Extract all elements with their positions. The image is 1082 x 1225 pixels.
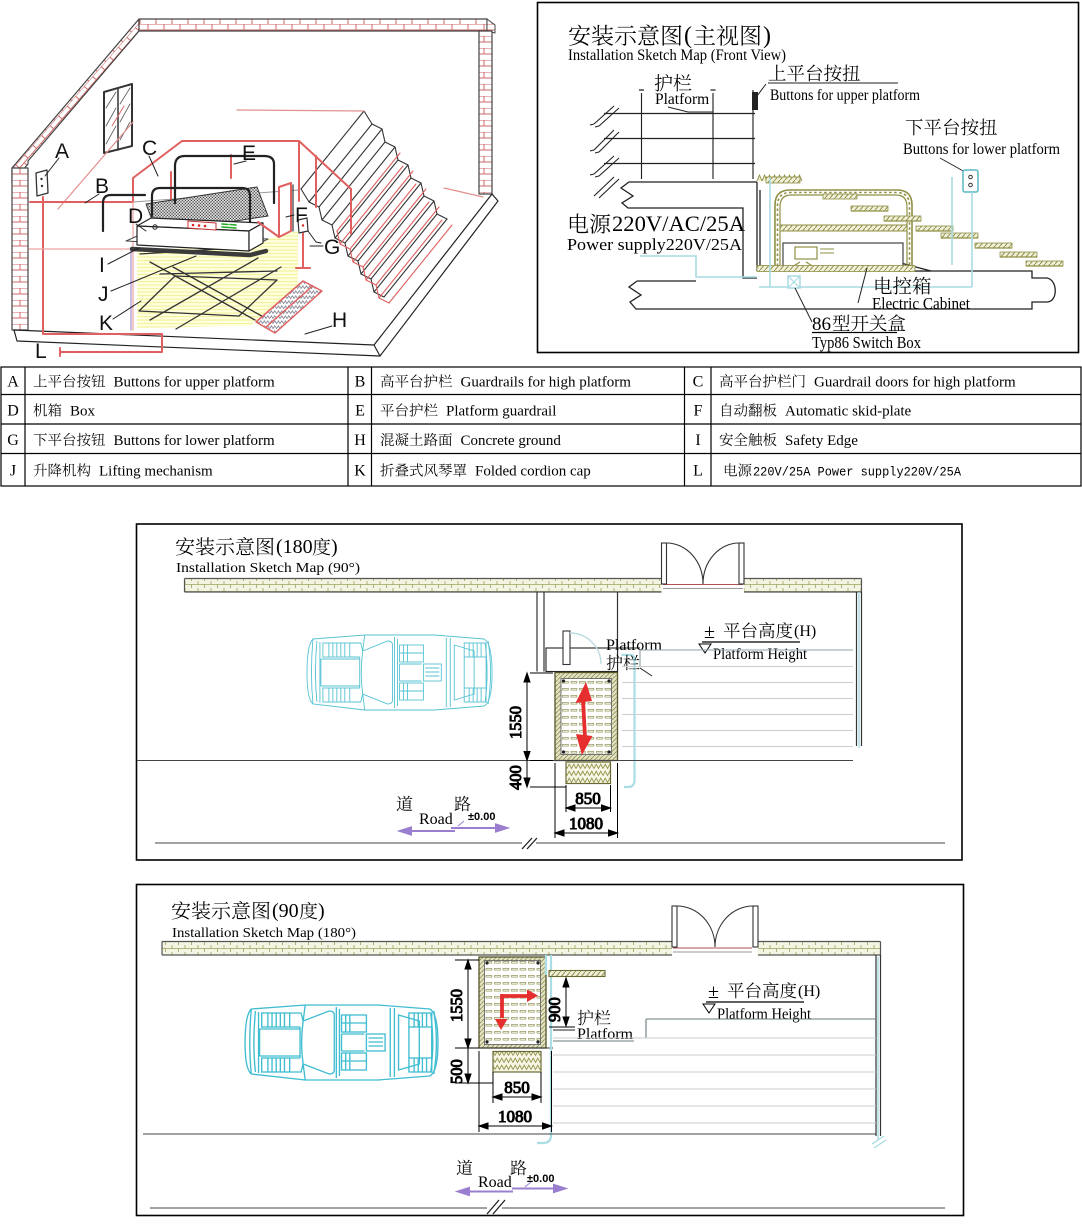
svg-text:1080: 1080 (569, 814, 603, 833)
svg-text:J: J (98, 283, 109, 306)
svg-text:D: D (7, 403, 19, 420)
svg-text:H: H (354, 432, 366, 449)
svg-text:Concrete ground: Concrete ground (461, 433, 562, 449)
svg-text:Power supply220V/25A: Power supply220V/25A (567, 235, 742, 254)
svg-text:900: 900 (545, 997, 564, 1022)
svg-text:±: ± (704, 621, 715, 643)
svg-text:G: G (324, 236, 340, 259)
svg-text:Platform: Platform (655, 91, 709, 108)
svg-text:): ) (763, 23, 771, 49)
svg-text:E: E (355, 403, 365, 420)
svg-text:Electric Cabinet: Electric Cabinet (872, 294, 970, 313)
svg-text:Buttons for upper platform: Buttons for upper platform (114, 375, 276, 391)
svg-text:1550: 1550 (447, 989, 466, 1022)
svg-text:±0.00: ±0.00 (527, 1173, 554, 1185)
svg-text:Platform Height: Platform Height (717, 1006, 811, 1023)
svg-text:K: K (99, 312, 113, 335)
svg-text:Buttons for lower platform: Buttons for lower platform (903, 141, 1060, 158)
svg-text:Road: Road (419, 811, 453, 828)
svg-text:B: B (95, 175, 109, 198)
svg-text:I: I (695, 432, 700, 449)
svg-text:850: 850 (575, 789, 601, 808)
svg-text:400: 400 (506, 765, 525, 790)
svg-text:F: F (694, 403, 703, 420)
svg-text:(180: (180 (276, 536, 313, 558)
svg-text:500: 500 (447, 1059, 466, 1084)
svg-text:Road: Road (478, 1174, 512, 1191)
svg-text:L: L (35, 340, 47, 363)
svg-text:±0.00: ±0.00 (468, 811, 495, 823)
svg-text:Folded cordion cap: Folded cordion cap (475, 464, 591, 480)
svg-text:Guardrail doors for high platf: Guardrail doors for high platform (814, 375, 1016, 391)
svg-text:A: A (7, 374, 19, 391)
svg-text:Installation Sketch Map (Front: Installation Sketch Map (Front View) (568, 47, 786, 64)
svg-text:Box: Box (70, 404, 96, 420)
svg-text:D: D (128, 205, 143, 228)
svg-text:Platform guardrail: Platform guardrail (446, 404, 556, 420)
svg-text:L: L (693, 463, 703, 480)
svg-text:Guardrails for high platform: Guardrails for high platform (461, 375, 632, 391)
svg-text:Automatic skid-plate: Automatic skid-plate (785, 404, 912, 420)
svg-text:C: C (693, 374, 704, 391)
svg-text:±: ± (708, 981, 719, 1003)
svg-text:J: J (10, 463, 16, 480)
svg-text:H: H (332, 309, 347, 332)
svg-text:1550: 1550 (506, 706, 525, 739)
svg-text:Buttons for lower platform: Buttons for lower platform (114, 433, 276, 449)
svg-text:(90: (90 (272, 900, 299, 922)
svg-text:K: K (354, 463, 366, 480)
svg-text:Safety Edge: Safety Edge (785, 433, 858, 449)
svg-text:): ) (318, 900, 325, 922)
svg-text:): ) (331, 536, 338, 558)
svg-text:850: 850 (504, 1078, 530, 1097)
svg-text:1080: 1080 (498, 1107, 532, 1126)
svg-text:(: ( (684, 23, 692, 49)
svg-text:Buttons for upper platform: Buttons for upper platform (770, 87, 920, 104)
svg-text:220V/25A Power supply220V/25A: 220V/25A Power supply220V/25A (753, 466, 961, 480)
svg-text:Lifting mechanism: Lifting mechanism (99, 464, 213, 480)
svg-text:G: G (7, 432, 19, 449)
svg-text:F: F (295, 204, 308, 227)
svg-text:A: A (55, 140, 69, 163)
svg-text:(H): (H) (794, 623, 816, 640)
svg-text:Platform Height: Platform Height (713, 646, 807, 663)
svg-text:Installation Sketch Map (90°): Installation Sketch Map (90°) (176, 561, 360, 576)
svg-text:Platform: Platform (606, 637, 663, 654)
svg-text:220V/AC/25A: 220V/AC/25A (612, 211, 745, 236)
svg-text:Typ86 Switch Box: Typ86 Switch Box (812, 333, 921, 352)
svg-text:86: 86 (812, 314, 831, 335)
svg-text:I: I (99, 254, 105, 277)
svg-text:Installation Sketch Map (180°): Installation Sketch Map (180°) (172, 926, 356, 941)
svg-text:B: B (355, 374, 366, 391)
svg-text:(H): (H) (798, 983, 820, 1000)
